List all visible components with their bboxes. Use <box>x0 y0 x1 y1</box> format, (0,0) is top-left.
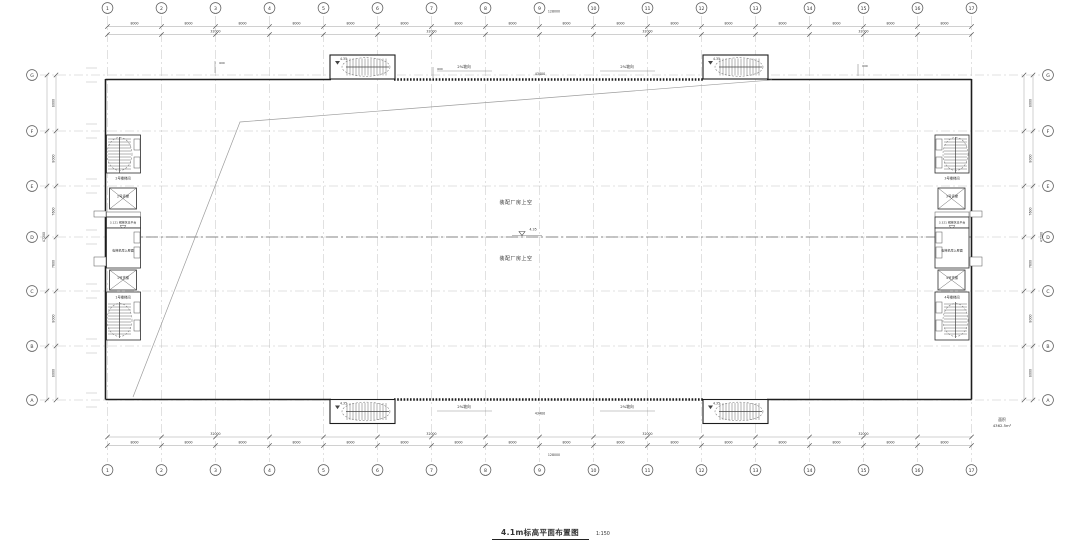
grid-column-label: 5 <box>322 468 325 474</box>
grid-bubble-top: 11 <box>642 3 653 14</box>
slope-note: 2%坡向 <box>620 64 634 69</box>
stair-tower: 4.35 <box>703 400 768 424</box>
slope-note: 2%坡向 <box>457 64 471 69</box>
grid-bubble-top: 13 <box>750 3 761 14</box>
row-grid: GGFFEEDDCCBBAA <box>27 70 1054 406</box>
grid-row-label: F <box>1047 129 1050 135</box>
dim-bottom-bay: 8000 <box>886 441 894 445</box>
grid-bubble-top: 4 <box>264 3 275 14</box>
grid-bubble-top: 14 <box>804 3 815 14</box>
area-label: 面积 <box>998 417 1006 422</box>
dim-right-total: 47200 <box>1040 232 1044 242</box>
dim-bottom-bay: 8000 <box>400 441 408 445</box>
dim-bottom-bay: 8000 <box>724 441 732 445</box>
dim-top-bay: 8000 <box>778 22 786 26</box>
grid-bubble-top: 17 <box>966 3 977 14</box>
dim-top-bay: 8000 <box>400 22 408 26</box>
grid-bubble-right: E <box>1043 181 1054 192</box>
grid-bubble-left: A <box>27 395 38 406</box>
grid-column-label: 15 <box>861 6 867 12</box>
dim-right-bay: 8000 <box>1029 99 1033 107</box>
grid-bubble-top: 1 <box>102 3 113 14</box>
grid-column-label: 5 <box>322 6 325 12</box>
dim-bottom-bay: 8000 <box>778 441 786 445</box>
tower-level-marker: 4.35 <box>713 57 720 61</box>
machine-room-label: 电梯机房上屋面 <box>112 248 134 253</box>
grid-bubble-bottom: 5 <box>318 465 329 476</box>
grid-bubble-bottom: 6 <box>372 465 383 476</box>
slope-note: 2%坡向 <box>457 404 471 409</box>
grid-column-label: 9 <box>538 468 541 474</box>
grid-bubble-bottom: 3 <box>210 465 221 476</box>
dim-bottom-bay: 8000 <box>616 441 624 445</box>
grid-bubble-top: 5 <box>318 3 329 14</box>
dim-top-total: 128000 <box>548 10 560 14</box>
dim-top-span: 32000 <box>858 30 868 34</box>
dim-bottom-bay: 8000 <box>832 441 840 445</box>
stair-label: 3号楼梯间 <box>944 176 959 181</box>
dim-bottom-bay: 8000 <box>184 441 192 445</box>
dim-bottom-bay: 8000 <box>562 441 570 445</box>
roof-diagonal <box>133 80 772 397</box>
dim-bottom-bay: 8000 <box>346 441 354 445</box>
dim-top-bay: 8000 <box>616 22 624 26</box>
grid-column-label: 1 <box>106 6 109 12</box>
grid-column-label: 2 <box>160 468 163 474</box>
tower-level-marker: 4.35 <box>340 402 347 406</box>
hall-label-lower: 装配厂房上空 <box>499 255 532 262</box>
grid-bubble-bottom: 14 <box>804 465 815 476</box>
grid-column-label: 8 <box>484 6 487 12</box>
dim-top-span: 32000 <box>210 30 220 34</box>
stair-label: 1号楼梯间 <box>115 295 130 300</box>
grid-bubble-top: 16 <box>912 3 923 14</box>
grid-column-label: 11 <box>645 468 651 474</box>
grid-column-label: 16 <box>915 6 921 12</box>
level-marker: 4.35 <box>529 228 536 232</box>
grid-row-label: B <box>30 344 33 350</box>
dim-edge-offset: 600 <box>437 67 443 71</box>
dim-bottom-bay: 8000 <box>670 441 678 445</box>
title-scale: 1:150 <box>596 531 610 537</box>
dim-right-bay: 8000 <box>1029 154 1033 162</box>
grid-column-label: 4 <box>268 468 271 474</box>
dim-bottom-span: 32000 <box>858 432 868 436</box>
grid-bubble-bottom: 17 <box>966 465 977 476</box>
dim-top-span: 32000 <box>426 30 436 34</box>
dim-right-bay: 8000 <box>1029 314 1033 322</box>
dim-top-bay: 8000 <box>886 22 894 26</box>
dim-bottom-span: 32000 <box>210 432 220 436</box>
grid-bubble-left: B <box>27 341 38 352</box>
grid-column-label: 4 <box>268 6 271 12</box>
grid-column-label: 12 <box>699 6 705 12</box>
grid-bubble-bottom: 8 <box>480 465 491 476</box>
grid-column-label: 6 <box>376 6 379 12</box>
dim-left-total: 47200 <box>42 232 46 242</box>
drawing-title: 4.1m标高平面布置图1:150 <box>492 527 610 540</box>
dim-bottom-total: 128000 <box>548 453 560 457</box>
grid-bubble-bottom: 15 <box>858 465 869 476</box>
grid-column-label: 16 <box>915 468 921 474</box>
left-dimensions: 80008000760076008000800047200 <box>42 68 97 407</box>
machine-room-label: 电梯机房上屋面 <box>941 248 963 253</box>
stair-label: 4号楼梯间 <box>944 295 959 300</box>
grid-column-label: 12 <box>699 468 705 474</box>
dim-bottom-bay: 8000 <box>454 441 462 445</box>
grid-row-label: G <box>30 73 34 79</box>
grid-bubble-right: F <box>1043 126 1054 137</box>
grid-bubble-bottom: 1 <box>102 465 113 476</box>
grid-bubble-right: A <box>1043 395 1054 406</box>
platform-label: 3.121 钢梯休息平台 <box>110 220 137 225</box>
grid-bubble-top: 2 <box>156 3 167 14</box>
dim-top-bay: 8000 <box>454 22 462 26</box>
grid-row-label: F <box>31 129 34 135</box>
area-note: 面积4362.5m² <box>993 417 1012 428</box>
dim-bottom-bay: 8000 <box>292 441 300 445</box>
grid-bubble-left: E <box>27 181 38 192</box>
grid-row-label: E <box>31 184 34 190</box>
grid-bubble-top: 15 <box>858 3 869 14</box>
floor-plan-canvas: 1122334455667788991010111112121313141415… <box>0 0 1080 552</box>
grid-bubble-left: C <box>27 286 38 297</box>
grid-row-label: D <box>30 235 34 241</box>
left-core: 2号楼梯间2号货梯3.121 钢梯休息平台电梯机房上屋面1号货梯1号楼梯间 <box>94 135 141 340</box>
grid-column-label: 9 <box>538 6 541 12</box>
slope-note: 2%坡向 <box>620 404 634 409</box>
lift-label: 3号货梯 <box>946 194 959 199</box>
dim-edge-offset: 600 <box>219 61 225 65</box>
grid-bubble-left: F <box>27 126 38 137</box>
dim-top-bay: 8000 <box>508 22 516 26</box>
grid-bubble-bottom: 12 <box>696 465 707 476</box>
grid-column-label: 15 <box>861 468 867 474</box>
grid-row-label: G <box>1046 73 1050 79</box>
grid-bubble-left: D <box>27 232 38 243</box>
grid-column-label: 13 <box>753 468 759 474</box>
dim-top-bay: 8000 <box>940 22 948 26</box>
grid-row-label: E <box>1047 184 1050 190</box>
grid-bubble-bottom: 9 <box>534 465 545 476</box>
grid-column-label: 7 <box>430 468 433 474</box>
grid-bubble-top: 9 <box>534 3 545 14</box>
grid-column-label: 10 <box>591 468 597 474</box>
grid-column-label: 11 <box>645 6 651 12</box>
dim-top-bay: 8000 <box>130 22 138 26</box>
dim-center-width: 43400 <box>535 412 546 416</box>
area-value: 4362.5m² <box>993 423 1012 428</box>
grid-bubble-right: D <box>1043 232 1054 243</box>
dim-left-bay: 8000 <box>52 99 56 107</box>
dim-right-bay: 8000 <box>1029 369 1033 377</box>
grid-row-label: C <box>30 289 33 295</box>
grid-column-label: 14 <box>807 468 813 474</box>
dim-left-bay: 8000 <box>52 369 56 377</box>
grid-bubble-top: 12 <box>696 3 707 14</box>
dim-bottom-span: 32000 <box>642 432 652 436</box>
dim-edge-offset: 600 <box>862 64 868 68</box>
dim-top-bay: 8000 <box>724 22 732 26</box>
dim-bottom-span: 32000 <box>426 432 436 436</box>
grid-column-label: 3 <box>214 6 217 12</box>
dim-top-bay: 8000 <box>562 22 570 26</box>
grid-bubble-top: 6 <box>372 3 383 14</box>
stair-tower: 4.35 <box>330 400 395 424</box>
roof-slope-notes-bottom: 2%坡向2%坡向43400 <box>437 404 655 416</box>
platform-label: 3.321 钢梯休息平台 <box>939 220 966 225</box>
grid-column-label: 17 <box>969 468 975 474</box>
grid-bubble-bottom: 16 <box>912 465 923 476</box>
stair-tower: 4.35 <box>330 55 395 79</box>
grid-bubble-bottom: 10 <box>588 465 599 476</box>
dim-top-bay: 8000 <box>346 22 354 26</box>
grid-column-label: 3 <box>214 468 217 474</box>
dim-bottom-bay: 8000 <box>508 441 516 445</box>
lift-label: 1号货梯 <box>117 275 130 280</box>
grid-column-label: 6 <box>376 468 379 474</box>
grid-bubble-bottom: 11 <box>642 465 653 476</box>
dim-left-bay: 8000 <box>52 314 56 322</box>
lift-label: 2号货梯 <box>117 194 130 199</box>
dim-top-span: 32000 <box>642 30 652 34</box>
title-text: 4.1m标高平面布置图 <box>501 527 579 537</box>
right-dimensions: 80008000760076008000800047200 <box>1022 73 1044 402</box>
tower-level-marker: 4.35 <box>713 402 720 406</box>
dim-left-bay: 7600 <box>52 207 56 215</box>
grid-bubble-top: 7 <box>426 3 437 14</box>
roof-slope-notes-top: 2%坡向2%坡向43400600600600 <box>215 61 868 79</box>
grid-column-label: 8 <box>484 468 487 474</box>
dim-bottom-bay: 8000 <box>940 441 948 445</box>
dim-left-bay: 7600 <box>52 260 56 268</box>
grid-row-label: B <box>1046 344 1049 350</box>
dim-right-bay: 7600 <box>1029 207 1033 215</box>
dim-bottom-bay: 8000 <box>130 441 138 445</box>
grid-column-label: 14 <box>807 6 813 12</box>
grid-bubble-bottom: 4 <box>264 465 275 476</box>
grid-bubble-bottom: 7 <box>426 465 437 476</box>
building-outline <box>106 79 972 400</box>
grid-bubble-top: 8 <box>480 3 491 14</box>
right-core: 3号楼梯间3号货梯3.321 钢梯休息平台电梯机房上屋面4号货梯4号楼梯间 <box>935 135 982 340</box>
grid-row-label: D <box>1046 235 1050 241</box>
dim-top-bay: 8000 <box>670 22 678 26</box>
tower-level-marker: 4.35 <box>340 57 347 61</box>
grid-bubble-left: G <box>27 70 38 81</box>
grid-row-label: A <box>1046 398 1050 404</box>
grid-column-label: 1 <box>106 468 109 474</box>
grid-bubble-top: 10 <box>588 3 599 14</box>
dim-center-width: 43400 <box>535 72 546 76</box>
grid-row-label: C <box>1046 289 1049 295</box>
dim-left-bay: 8000 <box>52 154 56 162</box>
grid-bubble-right: G <box>1043 70 1054 81</box>
grid-column-label: 7 <box>430 6 433 12</box>
grid-column-label: 17 <box>969 6 975 12</box>
dim-top-bay: 8000 <box>832 22 840 26</box>
dim-top-bay: 8000 <box>238 22 246 26</box>
grid-bubble-right: C <box>1043 286 1054 297</box>
lift-label: 4号货梯 <box>946 275 959 280</box>
stair-label: 2号楼梯间 <box>115 176 130 181</box>
grid-bubble-top: 3 <box>210 3 221 14</box>
grid-bubble-bottom: 2 <box>156 465 167 476</box>
dim-top-bay: 8000 <box>184 22 192 26</box>
grid-column-label: 2 <box>160 6 163 12</box>
dim-right-bay: 7600 <box>1029 260 1033 268</box>
grid-row-label: A <box>30 398 34 404</box>
hall-label-upper: 装配厂房上空 <box>499 199 532 206</box>
dim-bottom-bay: 8000 <box>238 441 246 445</box>
dim-top-bay: 8000 <box>292 22 300 26</box>
stair-tower: 4.35 <box>703 55 768 79</box>
grid-column-label: 13 <box>753 6 759 12</box>
hall-annotations: 装配厂房上空装配厂房上空4.35 <box>499 199 542 262</box>
grid-bubble-right: B <box>1043 341 1054 352</box>
drawing-sheet: 1122334455667788991010111112121313141415… <box>0 0 1080 552</box>
grid-bubble-bottom: 13 <box>750 465 761 476</box>
grid-column-label: 10 <box>591 6 597 12</box>
